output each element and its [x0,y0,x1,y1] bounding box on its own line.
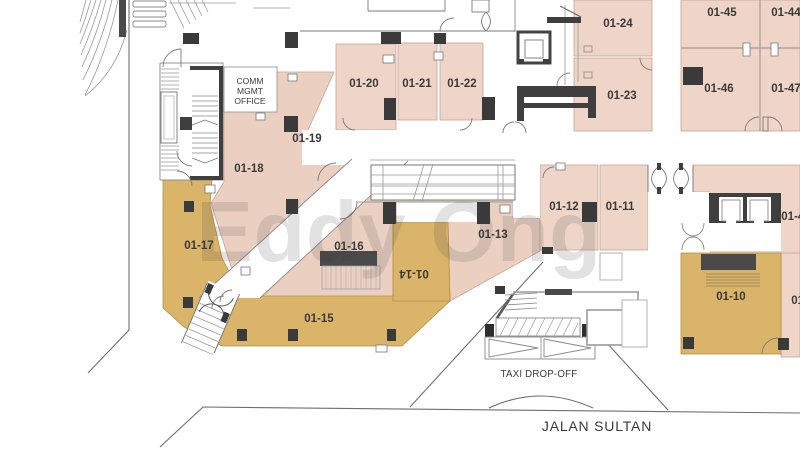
svg-text:01-17: 01-17 [184,240,213,252]
svg-text:TAXI DROP-OFF: TAXI DROP-OFF [501,369,578,380]
svg-text:01-14: 01-14 [399,267,429,279]
svg-text:01-44: 01-44 [771,7,800,19]
svg-text:01-20: 01-20 [349,78,378,90]
svg-text:01-13: 01-13 [478,229,507,241]
svg-text:01-49: 01-49 [791,295,800,307]
svg-text:01-48: 01-48 [781,211,800,223]
svg-text:01-23: 01-23 [607,90,636,102]
svg-text:01-24: 01-24 [603,18,633,30]
svg-text:01-15: 01-15 [304,313,334,325]
svg-text:01-46: 01-46 [704,83,733,95]
svg-text:Eddy Ong: Eddy Ong [196,185,601,280]
svg-text:01-47: 01-47 [771,83,800,95]
svg-text:01-18: 01-18 [234,163,264,175]
svg-text:01-16: 01-16 [334,241,363,253]
svg-text:COMM: COMM [237,76,264,86]
svg-text:01-22: 01-22 [447,78,476,90]
svg-text:01-11: 01-11 [606,201,635,213]
svg-text:01-10: 01-10 [716,291,745,303]
svg-text:01-12: 01-12 [549,201,578,213]
svg-text:01-45: 01-45 [707,7,737,19]
svg-text:01-19: 01-19 [292,133,321,145]
svg-text:OFFICE: OFFICE [234,96,265,106]
svg-text:JALAN SULTAN: JALAN SULTAN [542,418,652,434]
svg-text:01-21: 01-21 [402,78,432,90]
svg-text:MGMT: MGMT [237,86,263,96]
